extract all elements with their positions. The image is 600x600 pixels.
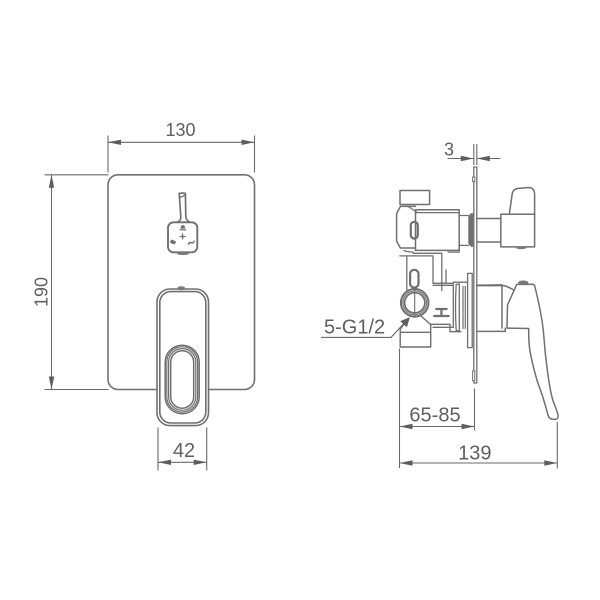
svg-text:5-G1/2: 5-G1/2 <box>324 317 385 339</box>
svg-text:65-85: 65-85 <box>409 405 460 427</box>
svg-text:190: 190 <box>32 277 52 307</box>
svg-text:130: 130 <box>165 120 195 140</box>
svg-text:3: 3 <box>444 140 454 160</box>
svg-text:139: 139 <box>458 443 491 465</box>
svg-text:42: 42 <box>173 440 195 462</box>
